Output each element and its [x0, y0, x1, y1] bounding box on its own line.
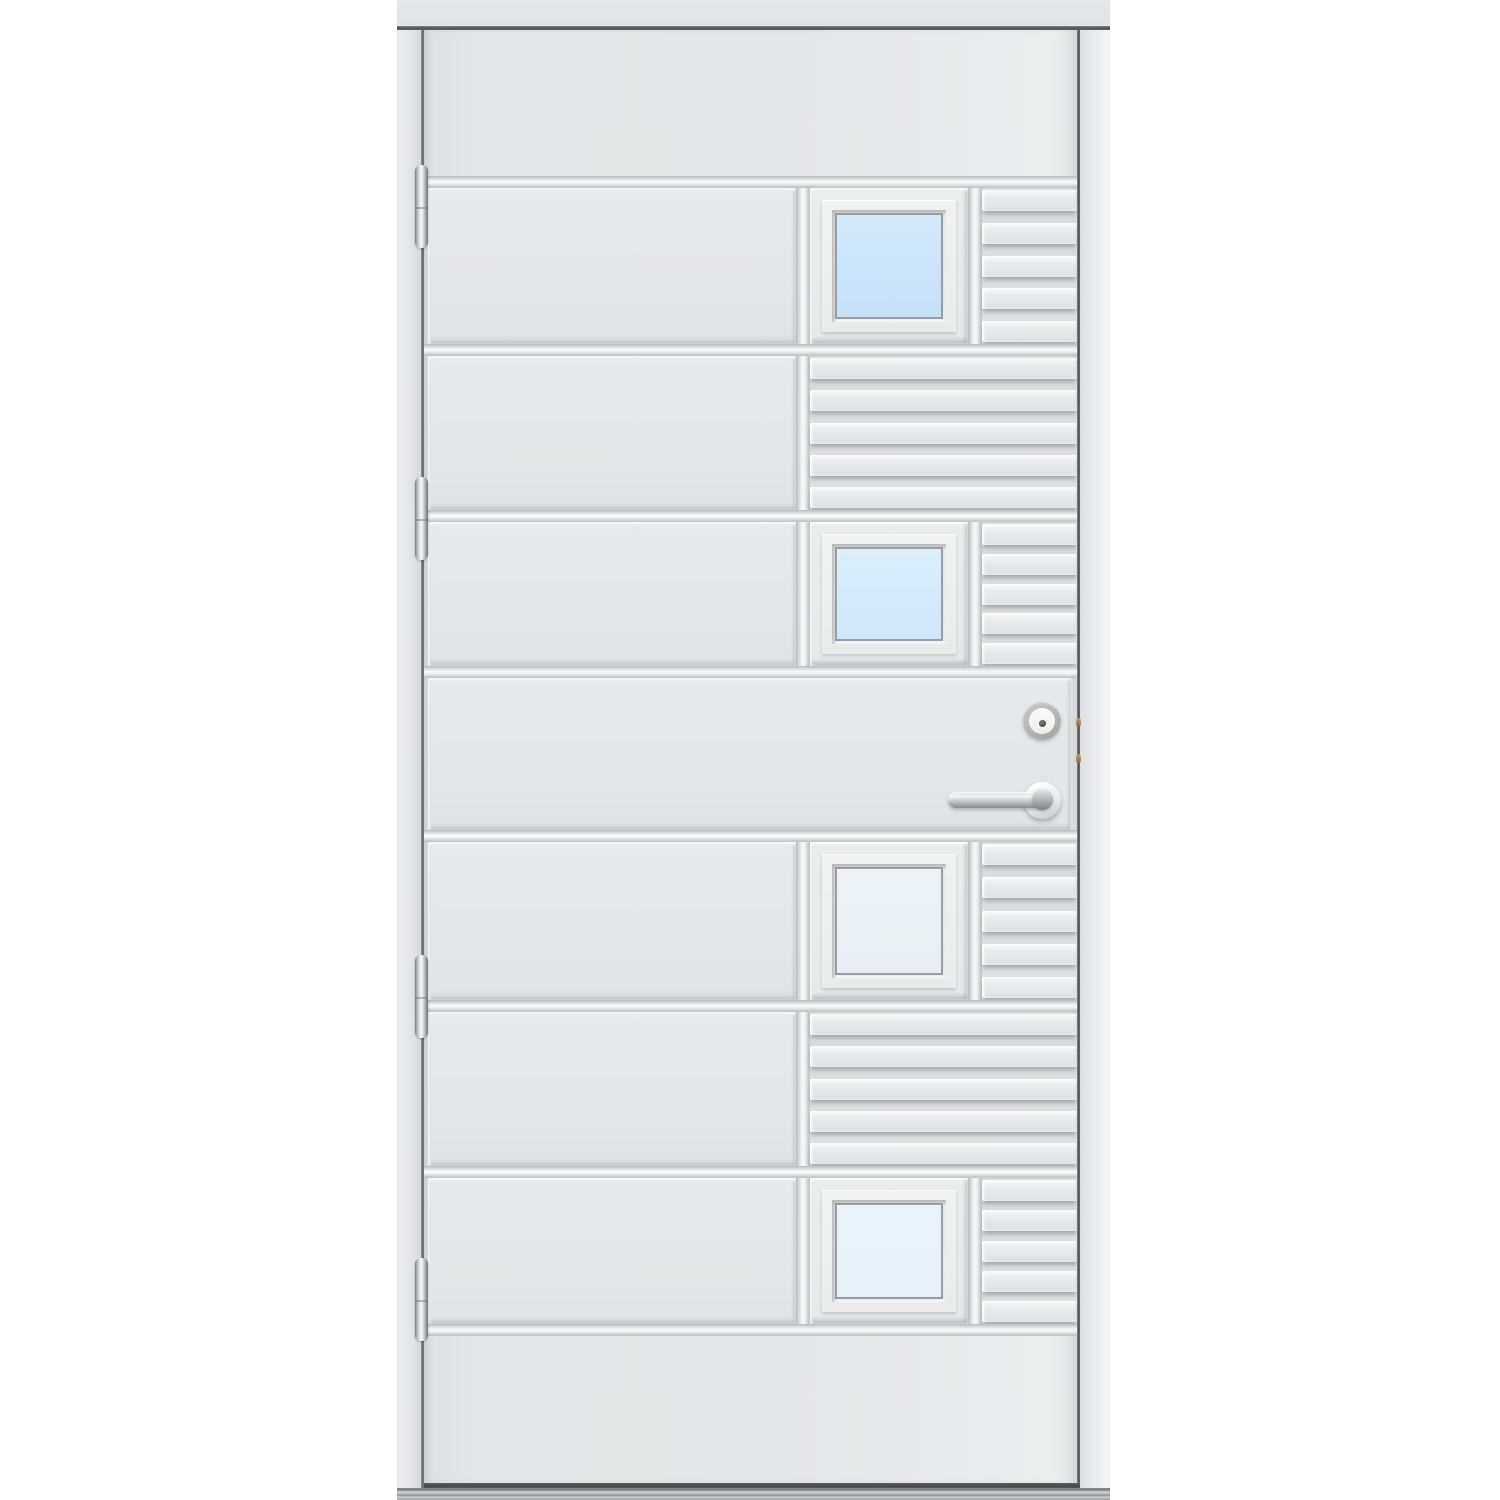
lock-cylinder — [1023, 702, 1061, 740]
door-panel — [428, 522, 796, 666]
slat-bar — [982, 256, 1077, 277]
groove-vertical — [796, 188, 810, 344]
window-sash — [832, 864, 946, 978]
slat-bar — [982, 844, 1077, 865]
slat-section — [982, 1178, 1077, 1324]
slat-section — [810, 1012, 1077, 1166]
door-panel — [428, 1178, 796, 1324]
groove-vertical — [796, 356, 810, 510]
strike-plate-dot — [1076, 754, 1081, 763]
groove-vertical — [968, 188, 982, 344]
slat-bar — [982, 288, 1077, 309]
window-cell — [810, 522, 968, 666]
slat-section — [982, 522, 1077, 666]
door-row-window-1 — [424, 188, 1077, 344]
hinge-1 — [415, 165, 428, 248]
groove-horizontal — [424, 510, 1077, 522]
slat-bar — [810, 390, 1077, 411]
slat-bar — [982, 977, 1077, 998]
slat-bar — [982, 524, 1077, 545]
slat-section — [810, 356, 1077, 510]
hinge-2 — [415, 477, 428, 560]
slat-bar — [810, 1143, 1077, 1164]
groove-vertical — [968, 1178, 982, 1324]
door-row-window-3 — [424, 842, 1077, 1000]
groove-horizontal — [424, 344, 1077, 356]
slat-bar — [810, 1014, 1077, 1035]
slat-bar — [982, 584, 1077, 605]
frame-head — [397, 0, 1110, 26]
window-cell — [810, 842, 968, 1000]
slat-bar — [810, 1046, 1077, 1067]
lock-cylinder-face — [1029, 708, 1055, 734]
slat-bar — [982, 1271, 1077, 1292]
door-leaf — [424, 30, 1077, 1483]
groove-vertical — [796, 1012, 810, 1166]
window-cell — [810, 1178, 968, 1324]
groove-horizontal — [424, 1324, 1077, 1336]
slat-bar — [982, 643, 1077, 664]
slat-bar — [810, 455, 1077, 476]
threshold-sill — [397, 1488, 1110, 1500]
window-glass-2 — [835, 547, 943, 641]
slat-bar — [982, 613, 1077, 634]
window-sash — [832, 210, 946, 322]
window-frame — [822, 200, 956, 332]
groove-vertical — [968, 842, 982, 1000]
door-row-window-2 — [424, 522, 1077, 666]
groove-vertical — [796, 522, 810, 666]
slat-bar — [982, 1241, 1077, 1262]
window-frame — [822, 854, 956, 988]
slat-bar — [810, 1111, 1077, 1132]
door-row-slats-1 — [424, 356, 1077, 510]
groove-horizontal — [424, 666, 1077, 678]
window-sash — [832, 1200, 946, 1302]
keyhole — [1039, 720, 1046, 727]
slat-bar — [982, 1210, 1077, 1231]
door-panel — [428, 356, 796, 510]
frame-post-right — [1080, 30, 1110, 1488]
slat-section — [982, 188, 1077, 344]
slat-bar — [982, 911, 1077, 932]
slat-bar — [810, 487, 1077, 508]
groove-horizontal — [424, 830, 1077, 842]
groove-horizontal — [424, 1166, 1077, 1178]
slat-bar — [982, 223, 1077, 244]
groove-horizontal — [424, 176, 1077, 188]
slat-bar — [982, 554, 1077, 575]
slat-bar — [982, 321, 1077, 342]
window-glass-1 — [835, 213, 943, 319]
slat-bar — [810, 423, 1077, 444]
window-frame — [822, 534, 956, 654]
slat-bar — [982, 1301, 1077, 1322]
door-row-window-4 — [424, 1178, 1077, 1324]
window-glass-3 — [835, 867, 943, 975]
groove-vertical — [796, 1178, 810, 1324]
door-panel — [428, 842, 796, 1000]
slat-bar — [982, 190, 1077, 211]
window-frame — [822, 1190, 956, 1312]
groove-vertical — [968, 522, 982, 666]
slat-bar — [810, 358, 1077, 379]
door-row-slats-2 — [424, 1012, 1077, 1166]
door-panel — [428, 1012, 796, 1166]
product-image-canvas — [0, 0, 1500, 1500]
groove-horizontal — [424, 1000, 1077, 1012]
slat-bar — [982, 1180, 1077, 1201]
window-cell — [810, 188, 968, 344]
strike-plate-dot — [1076, 718, 1081, 727]
window-sash — [832, 544, 946, 644]
groove-vertical — [796, 842, 810, 1000]
slat-bar — [982, 944, 1077, 965]
handle-neck — [1032, 789, 1053, 810]
slat-section — [982, 842, 1077, 1000]
slat-bar — [982, 877, 1077, 898]
slat-bar — [810, 1079, 1077, 1100]
window-glass-4 — [835, 1203, 943, 1299]
hinge-4 — [415, 1258, 428, 1341]
door-panel — [428, 188, 796, 344]
hinge-3 — [415, 955, 428, 1038]
